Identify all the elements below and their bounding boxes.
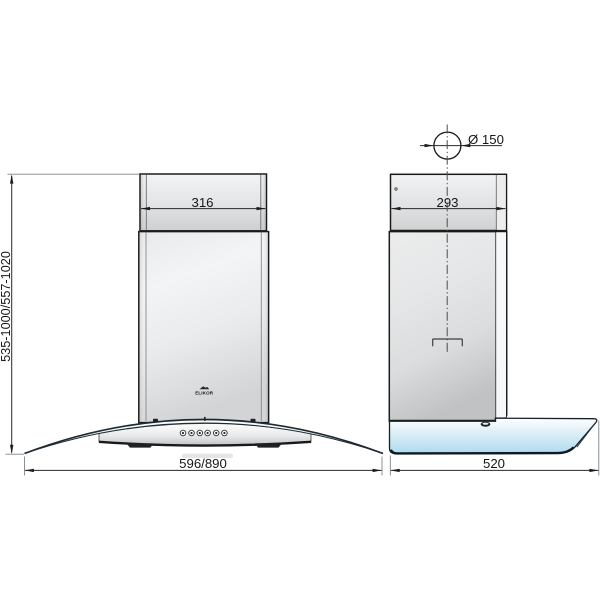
svg-text:Ø 150: Ø 150 <box>468 132 504 147</box>
svg-text:316: 316 <box>191 195 213 210</box>
svg-text:535-1000/557-1020: 535-1000/557-1020 <box>0 251 13 362</box>
svg-text:ELIKOR: ELIKOR <box>195 391 214 396</box>
svg-text:520: 520 <box>483 456 505 471</box>
svg-text:596/890: 596/890 <box>179 456 227 471</box>
